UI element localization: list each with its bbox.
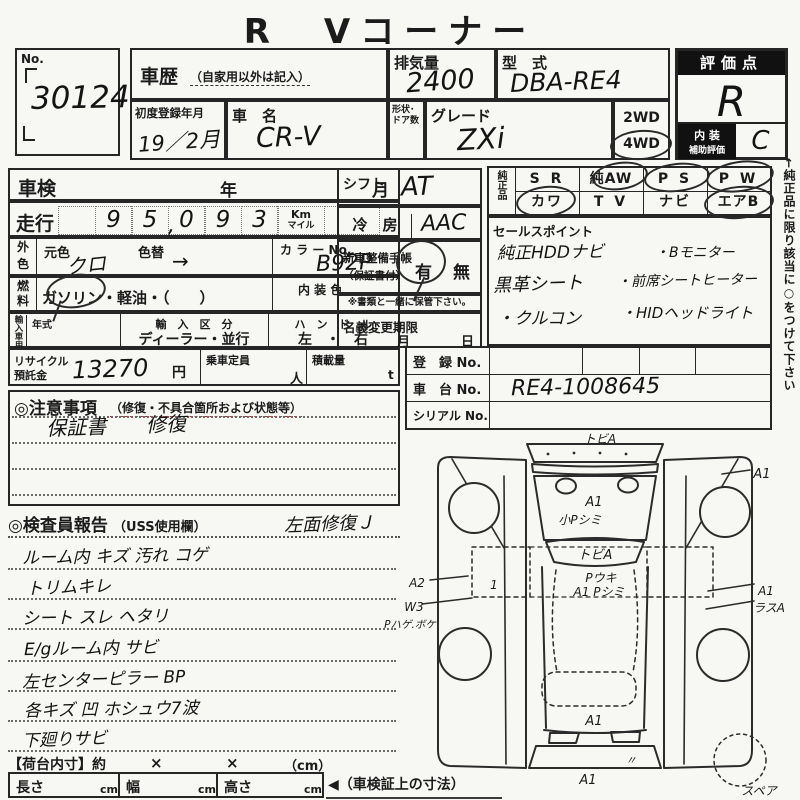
door-1-annotation: 1: [490, 578, 498, 592]
shaken-label: 車検: [18, 174, 56, 201]
pax-unit: 人: [290, 368, 303, 387]
lot-number-value: 30124: [31, 79, 130, 117]
shift-value: AT: [400, 171, 433, 202]
genuine-head: 純正品: [493, 170, 508, 212]
left-front-wheel: [449, 483, 499, 533]
score-header: 評価点: [678, 51, 785, 75]
mileage-unit-cell: Kmマイル: [277, 206, 325, 235]
mileage-digits: 95093Kmマイル: [58, 206, 378, 235]
sales-item: 黒革シート: [493, 268, 584, 297]
tick-rf-a1: [722, 470, 750, 474]
sales-item: ・前席シートヒーター: [617, 269, 757, 291]
score-value: R: [678, 77, 785, 126]
history-cell: 車歴 （自家用以外は記入）: [130, 48, 388, 100]
rear-a1-annotation: A1: [578, 773, 596, 788]
car-diagram: トビA A1 小Pシミ トビA Pウキ A1 Pシミ A1 A2 W3 Pハゲ.…: [370, 428, 800, 800]
right-rear-wheel: [697, 629, 749, 681]
serial-no-label: シリアル No.: [413, 407, 488, 424]
import-year-label: 年式: [32, 316, 52, 331]
book-note-strip: ※書類と一緒に保管下さい。: [337, 294, 482, 312]
roof-uki-annotation: Pウキ: [585, 571, 616, 585]
interior-score-row: 内 装 補助評価 C: [678, 122, 785, 159]
divider: [695, 348, 696, 374]
tick-w3: [422, 598, 472, 604]
rear-window-shape: [542, 672, 636, 706]
ac-value: AAC: [421, 210, 467, 237]
auction-sheet: R Vコーナー No. 30124 車歴 （自家用以外は記入） 排気量 2400…: [0, 0, 800, 800]
left-w3-annotation: W3: [404, 600, 424, 614]
hand-bracket-bottom: [23, 126, 35, 141]
ruled-line: [12, 468, 396, 470]
cargo-arrow-note: ◀（車検証上の寸法）: [328, 774, 465, 794]
lot-number-label: No.: [21, 52, 44, 66]
cautions-box: ◎注意事項 （修復・不具合箇所および状態等） 保証書 修復: [8, 390, 400, 506]
report-label: ◎検査員報告: [8, 516, 108, 536]
divider: [272, 278, 273, 310]
color-change-value: →: [172, 249, 189, 273]
report-line: トリムキレ: [8, 570, 396, 600]
left-side-shape: [438, 457, 526, 768]
report-line: シート スレ ヘタリ: [8, 600, 396, 630]
model-code-cell: 型 式 DBA-RE4: [496, 48, 670, 100]
sales-points-box: セールスポイント 純正HDDナビ ・Bモニター 黒革シート ・前席シートヒーター…: [487, 216, 772, 346]
displacement-value: 2400: [405, 64, 476, 100]
sales-item: 純正HDDナビ: [497, 237, 604, 264]
tailgate-edge: [544, 730, 646, 733]
report-line: 下廻りサビ: [8, 722, 396, 752]
shift-label: シフト: [343, 174, 385, 194]
chassis-no-label: 車 台 No.: [413, 379, 481, 398]
body-doors-cell: 形状･ドア数: [388, 100, 425, 160]
ac-row: 冷 房 AAC: [337, 206, 482, 240]
windshield-shape: [546, 538, 644, 566]
shaken-year-label: 年: [220, 176, 237, 201]
first-registration-label: 初度登録年月: [135, 105, 204, 121]
grade-value: ZXi: [456, 121, 506, 157]
first-registration-cell: 初度登録年月 19／2月: [130, 100, 226, 160]
divider: [489, 348, 490, 428]
report-side-entry: 左面修復Ｊ: [284, 508, 375, 537]
report-line: E/gルーム内 サビ: [8, 630, 396, 662]
report-line: 各キズ 凹 ホシュウ7波: [8, 692, 396, 722]
right-a1-annotation: A1: [757, 584, 774, 598]
tick-right-a1: [708, 584, 754, 591]
recycle-value: 13270: [72, 354, 149, 385]
cabin-left-edge: [542, 567, 546, 728]
grade-cell: グレード ZXi: [425, 100, 613, 160]
import-head: 輸入車用: [12, 315, 27, 346]
car-name-cell: 車 名 CR-V: [226, 100, 388, 160]
cargo-length-cell: 長さ cm: [8, 772, 120, 798]
registration-block: 登 録 No. 車 台 No. RE4-1008645 シリアル No.: [405, 346, 772, 430]
ruled-line: [12, 494, 396, 496]
hood-shimi-annotation: 小Pシミ: [558, 513, 601, 527]
taillight-right: [611, 732, 640, 742]
right-front-wheel: [700, 487, 750, 537]
fuel-head: 燃 料: [10, 278, 37, 310]
genuine-navi: ナビ: [643, 191, 708, 214]
cautions-entry: 保証書 修復: [46, 408, 187, 442]
load-unit: t: [388, 368, 394, 382]
page-title: R Vコーナー: [170, 4, 610, 53]
front-tobi-annotation: トビA: [584, 432, 616, 446]
book-no: 無: [453, 258, 470, 283]
import-division-value: ディーラー・並行: [120, 329, 268, 349]
taillight-left: [549, 733, 579, 743]
color-head: 外 色: [10, 239, 37, 274]
hood-a1-annotation: A1: [584, 495, 602, 510]
bumper-lip-shape: [532, 464, 658, 475]
washer-right: [618, 478, 638, 493]
washer-left: [556, 479, 576, 494]
interior-score-label: 内 装 補助評価: [678, 124, 736, 159]
left-rear-wheel: [439, 628, 491, 680]
divider: [306, 350, 307, 384]
genuine-tv: T V: [579, 191, 644, 214]
history-label: 車歴: [140, 62, 178, 89]
chassis-no-value: RE4-1008645: [511, 374, 661, 402]
divider: [639, 348, 640, 374]
recycle-unit: 円: [172, 362, 186, 382]
rear-bumper-shape: [529, 746, 661, 768]
spare-label: スペア: [741, 784, 778, 798]
recycle-row: リサイクル 預託金 13270 円 乗車定員 人 積載量 t: [8, 348, 400, 386]
mileage-label: 走行: [16, 209, 54, 236]
right-side-shape: [664, 457, 752, 768]
shift-cell: シフト AT: [337, 168, 482, 206]
body-doors-label: 形状･ドア数: [392, 105, 422, 128]
cargo-x1: ×: [150, 754, 163, 772]
divider: [407, 401, 770, 402]
score-box: 評価点 R 内 装 補助評価 C: [675, 48, 788, 160]
spare-tire-circle: [714, 734, 766, 786]
recycle-label2: 預託金: [14, 367, 47, 383]
mileage-comma: ,: [168, 213, 175, 238]
right-fender-a1-annotation: A1: [752, 467, 770, 482]
first-registration-value: 19／2月: [137, 123, 221, 159]
pax-label: 乗車定員: [206, 352, 250, 368]
cargo-height-cell: 高さ cm: [216, 772, 324, 798]
margin-note: ←純正品に限り該当に○をつけて下さい: [776, 158, 798, 458]
drive-2wd: 2WD: [615, 110, 668, 126]
tick-a2: [430, 576, 468, 580]
tick-right-rasu: [706, 601, 754, 609]
cargo-label: 【荷台内寸】約: [8, 754, 106, 774]
displacement-cell: 排気量 2400: [388, 48, 496, 100]
sales-item: ・クルコン: [497, 304, 581, 329]
lot-number-box: No. 30124: [15, 48, 120, 156]
sales-item: ・HIDヘッドライト: [621, 302, 753, 323]
divider: [200, 350, 201, 384]
car-name-value: CR-V: [255, 121, 321, 154]
left-a2-annotation: A2: [408, 576, 425, 590]
report-line: ルーム内 キズ 汚れ コゲ: [8, 538, 396, 570]
front-bumper-shape: [527, 444, 663, 462]
book-label2: （保証書付）: [343, 268, 406, 283]
hood-shape: [534, 476, 656, 540]
roof-shimi-annotation: A1 Pシミ: [573, 585, 625, 599]
color-change-label: 色替: [138, 242, 164, 261]
cargo-x2: ×: [226, 754, 239, 772]
model-code-value: DBA-RE4: [510, 65, 623, 98]
divider: [272, 239, 273, 274]
glass-tobi-annotation: トビA: [578, 548, 613, 563]
name-change-box: 名義変更期限 月 日: [337, 312, 482, 348]
ruled-line: [12, 442, 396, 444]
cargo-width-cell: 幅 cm: [118, 772, 218, 798]
cabin-right-edge: [644, 567, 648, 728]
report-note: （USS使用欄）: [113, 520, 207, 535]
history-note: （自家用以外は記入）: [190, 68, 310, 86]
bumper-dots: [547, 452, 628, 456]
interior-score-value: C: [736, 126, 785, 156]
report-line: 左センターピラー BP: [8, 662, 396, 692]
divider: [582, 348, 583, 374]
right-rasu-annotation: ラスA: [753, 601, 785, 615]
right-door-dashed: [647, 547, 713, 597]
left-door-dashed: [472, 547, 530, 597]
interior-color-label: 内 装 色: [298, 281, 342, 298]
reg-no-label: 登 録 No.: [413, 352, 481, 371]
load-label: 積載量: [312, 352, 345, 368]
ac-label: 冷 房: [339, 214, 412, 238]
tailgate-a1-annotation: A1: [584, 714, 602, 729]
ditto-annotation: 〃: [626, 754, 637, 767]
sales-item: ・Bモニター: [655, 242, 735, 262]
cargo-underline: [326, 797, 502, 799]
